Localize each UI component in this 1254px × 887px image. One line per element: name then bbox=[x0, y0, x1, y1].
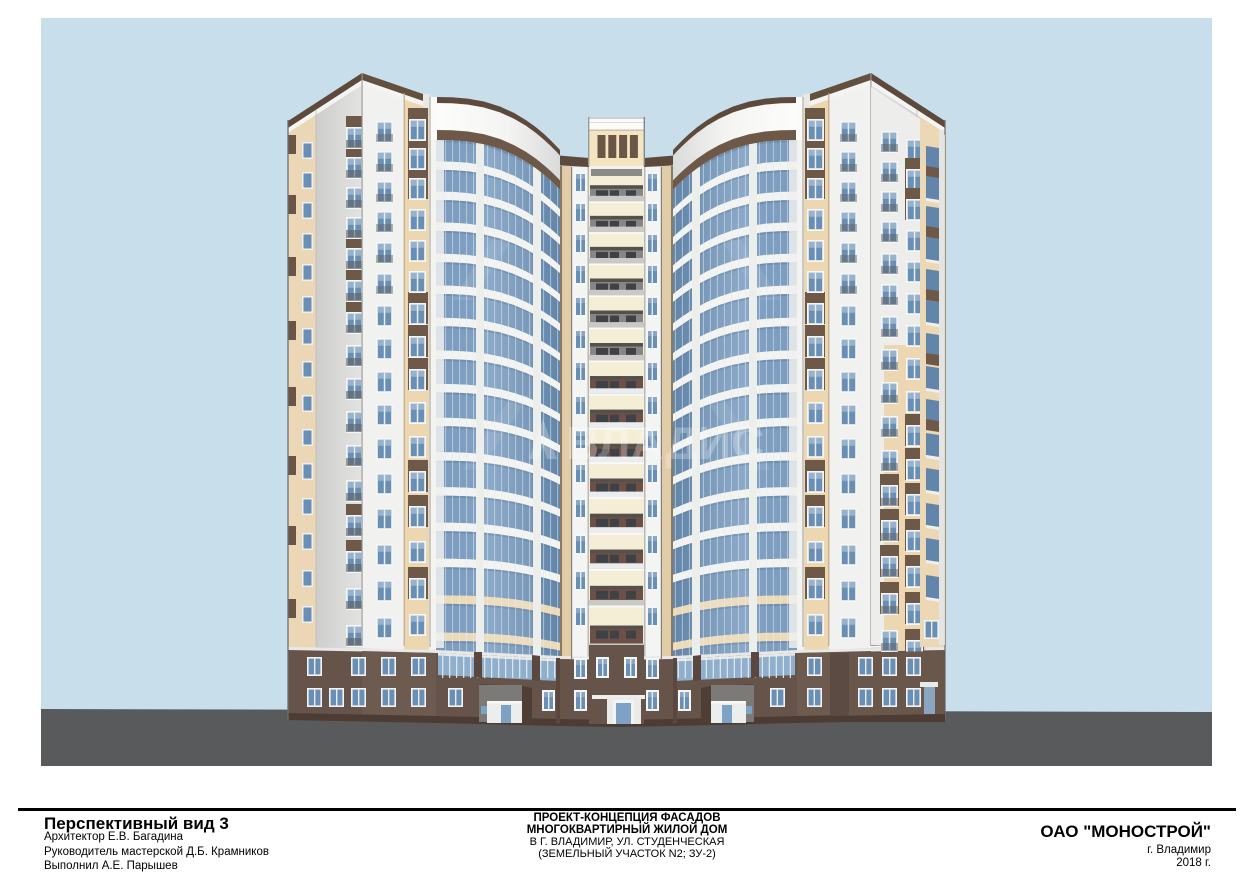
svg-text:ВЛАДИС: ВЛАДИС bbox=[566, 417, 764, 469]
